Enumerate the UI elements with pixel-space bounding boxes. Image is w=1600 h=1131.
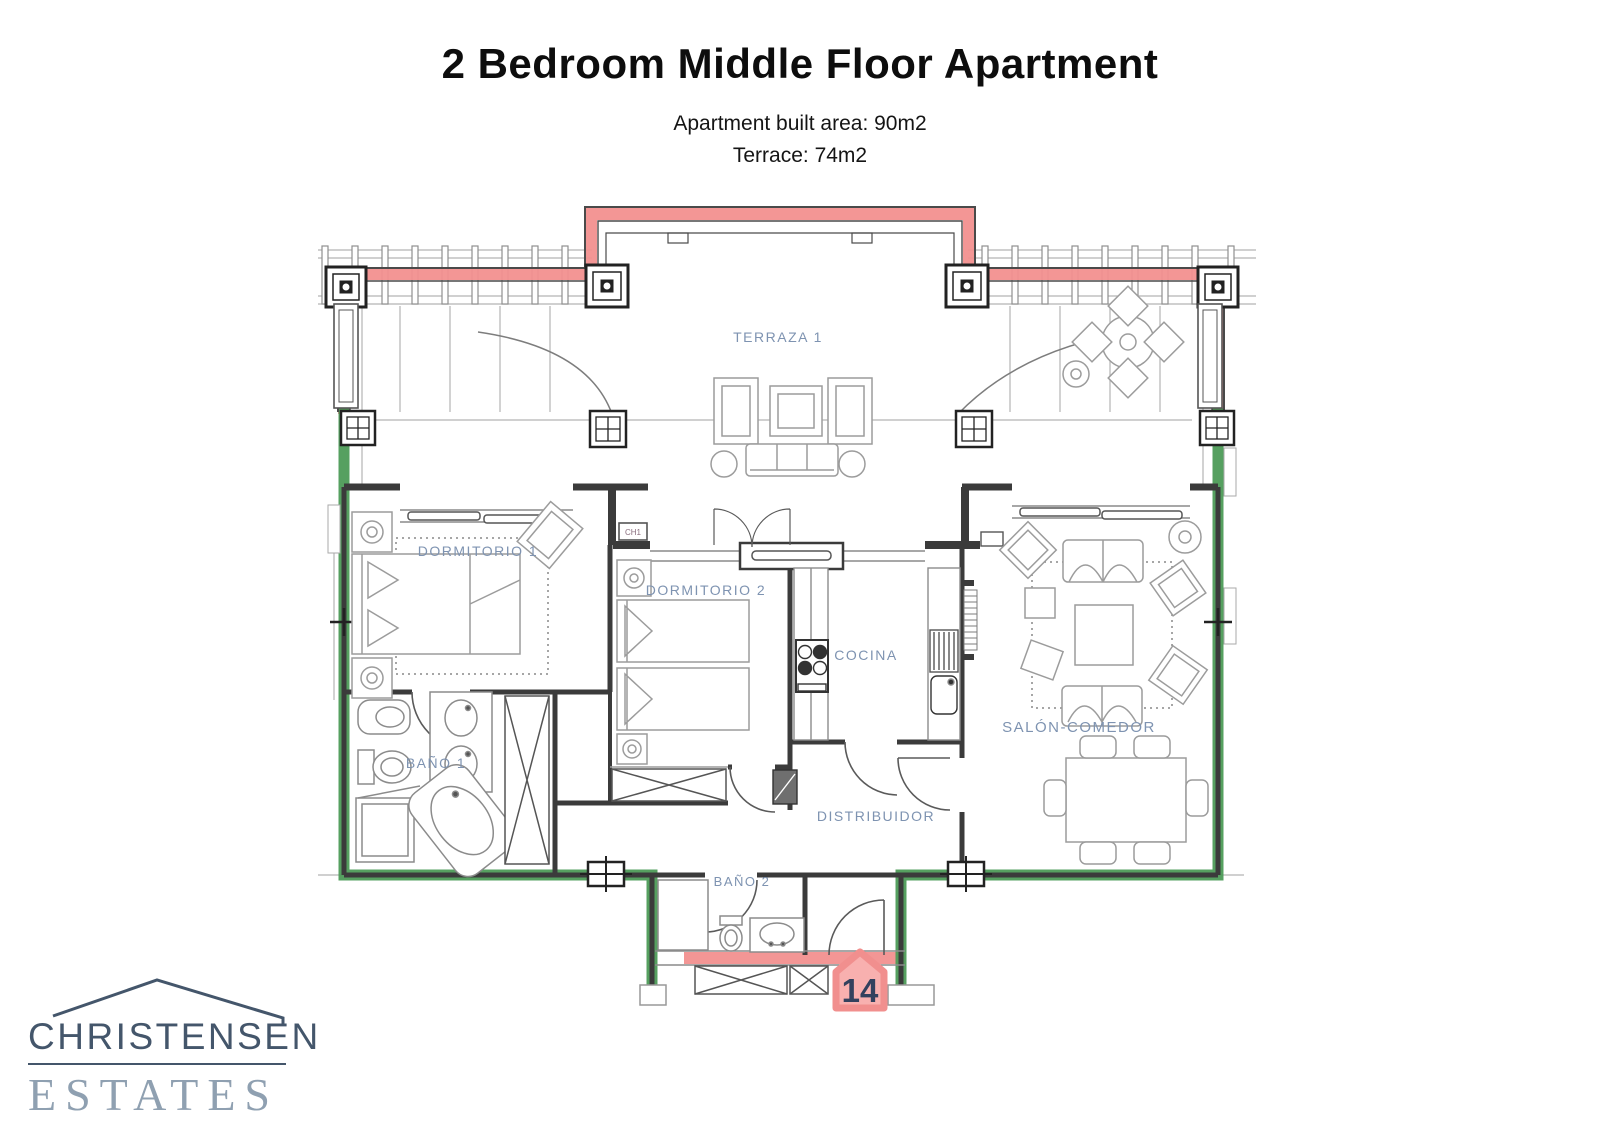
room-label-cocina: COCINA — [834, 647, 897, 663]
salon-furniture — [1000, 521, 1208, 864]
room-label-dormitorio1: DORMITORIO 1 — [418, 543, 538, 559]
room-label-terraza: TERRAZA 1 — [733, 329, 823, 345]
page: 2 Bedroom Middle Floor Apartment Apartme… — [0, 0, 1600, 1131]
room-label-bano1: BAÑO 1 — [406, 755, 466, 771]
room-label-bano2: BAÑO 2 — [714, 874, 771, 889]
room-label-dormitorio2: DORMITORIO 2 — [646, 582, 766, 598]
logo-name: CHRISTENSEN — [28, 1016, 298, 1058]
room-label-salon: SALÓN-COMEDOR — [1002, 719, 1156, 736]
tv-unit-hatch — [964, 590, 977, 650]
logo-divider — [28, 1063, 286, 1065]
entry-steps — [640, 966, 934, 1005]
bano2-fixtures — [658, 880, 804, 952]
room-label-distribuidor: DISTRIBUIDOR — [817, 808, 935, 824]
logo-subname: ESTATES — [28, 1068, 298, 1121]
unit-number: 14 — [842, 972, 879, 1009]
cocina-fixtures — [773, 568, 960, 804]
bano1-furniture — [356, 692, 549, 883]
agency-logo: CHRISTENSEN ESTATES — [28, 950, 298, 1121]
logo-roof-icon — [28, 950, 298, 1024]
dormitorio1-furniture — [352, 502, 583, 698]
terrace-furniture — [711, 286, 1184, 477]
svg-text:CH1: CH1 — [625, 528, 642, 537]
terrace-parapet — [338, 207, 1224, 412]
